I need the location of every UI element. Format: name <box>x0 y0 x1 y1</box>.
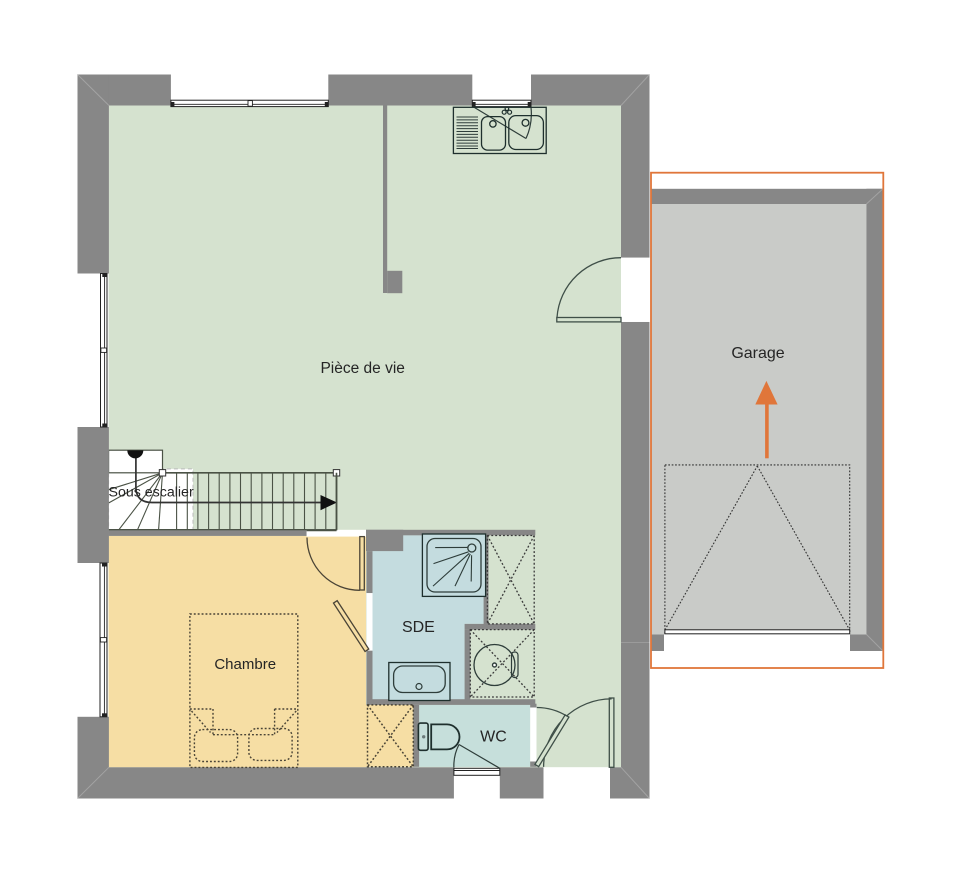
svg-text:SDE: SDE <box>402 619 435 636</box>
svg-text:WC: WC <box>480 728 507 745</box>
svg-text:Chambre: Chambre <box>214 656 276 673</box>
svg-text:Sous escalier: Sous escalier <box>109 485 194 501</box>
svg-text:Pièce de vie: Pièce de vie <box>320 360 404 377</box>
svg-text:Garage: Garage <box>731 345 784 362</box>
